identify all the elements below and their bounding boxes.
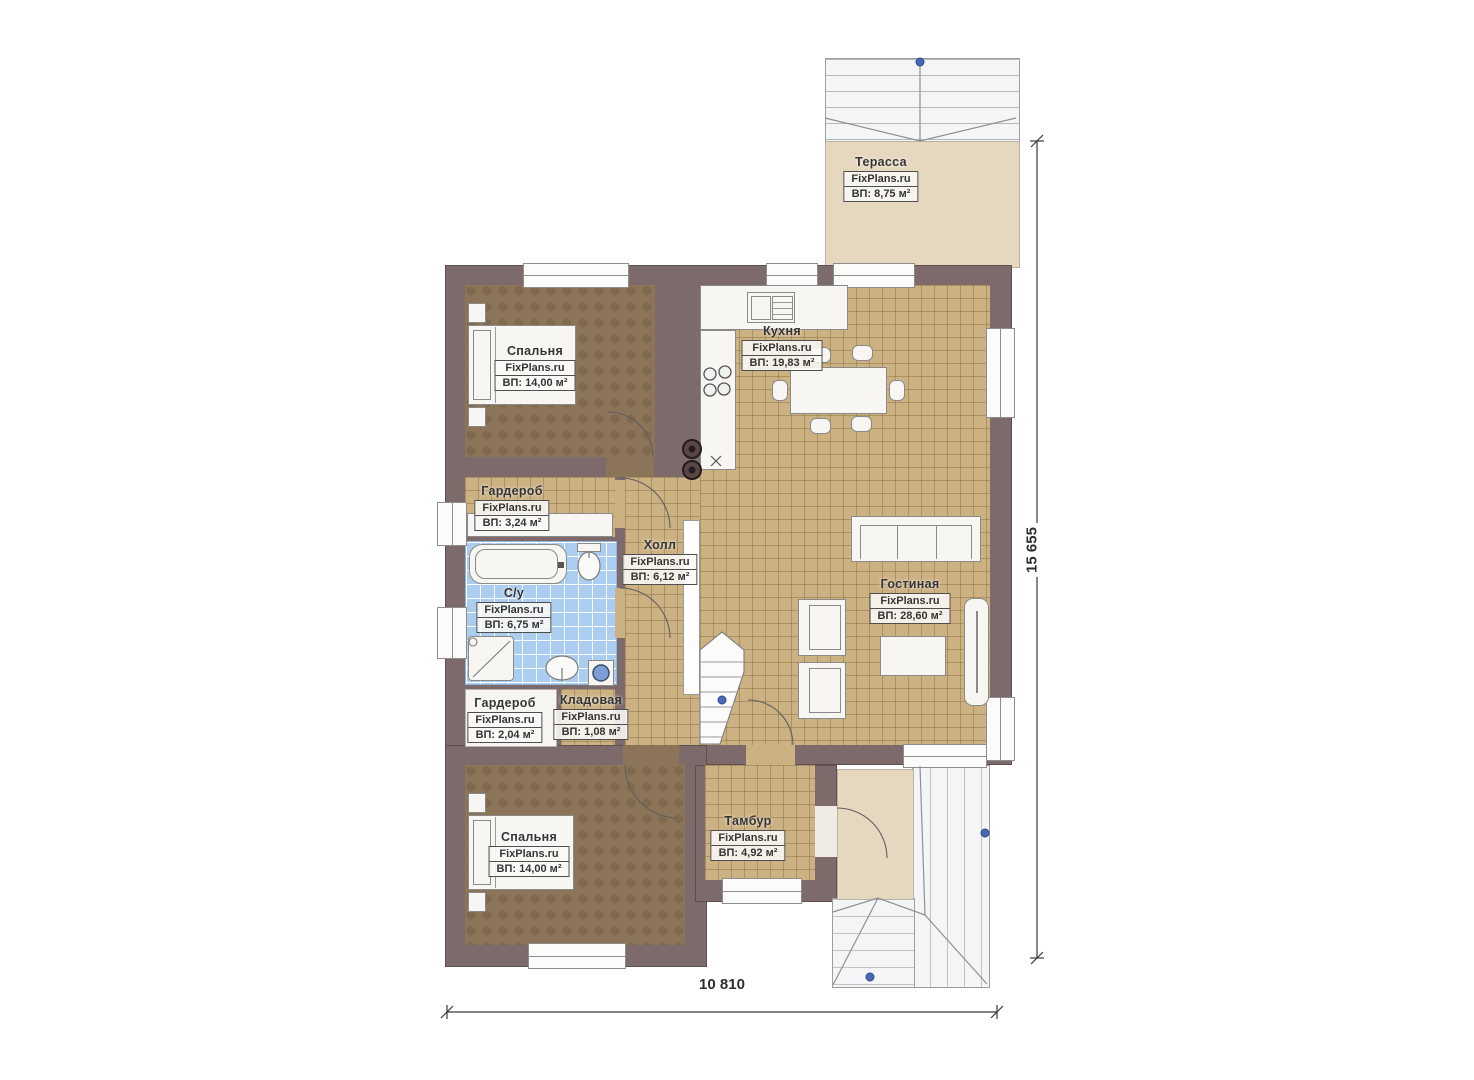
room-label-bedroom-bottom: Спальня FixPlans.ru ВП: 14,00 м² bbox=[489, 830, 570, 877]
dimension-height: 15 655 bbox=[1024, 523, 1041, 577]
kitchen-sink-drainer bbox=[772, 296, 793, 320]
shower bbox=[468, 636, 514, 681]
porch-canopy-hatch-right bbox=[912, 765, 990, 988]
room-label-bathroom: С/у FixPlans.ru ВП: 6,75 м² bbox=[476, 586, 551, 633]
armchair bbox=[798, 599, 846, 656]
room-area: ВП: 19,83 м² bbox=[743, 356, 822, 370]
room-label-terrace: Терасса FixPlans.ru ВП: 8,75 м² bbox=[843, 155, 918, 202]
watermark: FixPlans.ru bbox=[490, 847, 569, 862]
door-opening-bathroom bbox=[615, 588, 625, 638]
door-opening-wardrobe-top bbox=[615, 480, 625, 528]
room-label-vestibule: Тамбур FixPlans.ru ВП: 4,92 м² bbox=[710, 814, 785, 861]
dining-table bbox=[790, 367, 887, 414]
room-label-hall: Холл FixPlans.ru ВП: 6,12 м² bbox=[622, 538, 697, 585]
room-name: Тамбур bbox=[710, 814, 785, 828]
room-name: Кладовая bbox=[553, 693, 628, 707]
dimension-width: 10 810 bbox=[695, 976, 749, 993]
kitchen-counter-left bbox=[700, 330, 736, 470]
window-bedroom-bottom bbox=[528, 943, 626, 969]
room-name: С/у bbox=[476, 586, 551, 600]
dining-chair bbox=[810, 418, 831, 434]
nightstand bbox=[468, 892, 486, 912]
door-opening-vestibule bbox=[746, 745, 795, 765]
room-name: Гостиная bbox=[870, 577, 951, 591]
bathtub bbox=[469, 544, 567, 584]
room-label-bedroom-top: Спальня FixPlans.ru ВП: 14,00 м² bbox=[495, 344, 576, 391]
floor-plan: Терасса FixPlans.ru ВП: 8,75 м² Спальня … bbox=[0, 0, 1474, 1080]
radiator-unit bbox=[964, 598, 989, 706]
window-vestibule bbox=[722, 878, 802, 904]
kitchen-sink-basin bbox=[751, 296, 771, 320]
dining-chair bbox=[889, 380, 905, 401]
coffee-table bbox=[880, 636, 946, 676]
window-living-right bbox=[986, 697, 1015, 761]
dining-chair bbox=[852, 345, 873, 361]
nightstand bbox=[468, 793, 486, 813]
room-name: Гардероб bbox=[467, 696, 542, 710]
room-label-living-room: Гостиная FixPlans.ru ВП: 28,60 м² bbox=[870, 577, 951, 624]
porch-floor bbox=[837, 769, 914, 900]
watermark: FixPlans.ru bbox=[477, 603, 550, 618]
dining-chair bbox=[772, 380, 788, 401]
watermark: FixPlans.ru bbox=[468, 713, 541, 728]
room-label-storage: Кладовая FixPlans.ru ВП: 1,08 м² bbox=[553, 693, 628, 740]
watermark: FixPlans.ru bbox=[743, 341, 822, 356]
room-name: Гардероб bbox=[474, 484, 549, 498]
room-area: ВП: 1,08 м² bbox=[554, 725, 627, 739]
washing-machine bbox=[588, 660, 614, 686]
room-area: ВП: 14,00 м² bbox=[490, 862, 569, 876]
door-opening-bedroom-top bbox=[606, 457, 654, 477]
door-opening-bedroom-bottom bbox=[623, 745, 679, 765]
room-name: Кухня bbox=[742, 324, 823, 338]
room-area: ВП: 14,00 м² bbox=[496, 376, 575, 390]
room-area: ВП: 6,12 м² bbox=[623, 570, 696, 584]
watermark: FixPlans.ru bbox=[844, 172, 917, 187]
watermark: FixPlans.ru bbox=[496, 361, 575, 376]
room-area: ВП: 3,24 м² bbox=[475, 516, 548, 530]
dining-chair bbox=[851, 416, 872, 432]
room-name: Спальня bbox=[495, 344, 576, 358]
room-area: ВП: 8,75 м² bbox=[844, 187, 917, 201]
dimension-line-width bbox=[441, 1005, 1003, 1019]
watermark: FixPlans.ru bbox=[623, 555, 696, 570]
room-name: Терасса bbox=[843, 155, 918, 169]
porch-canopy-hatch-bottom bbox=[832, 898, 915, 988]
watermark: FixPlans.ru bbox=[475, 501, 548, 516]
terrace-roof-hatch bbox=[825, 58, 1020, 144]
watermark: FixPlans.ru bbox=[871, 594, 950, 609]
room-area: ВП: 6,75 м² bbox=[477, 618, 550, 632]
sofa bbox=[851, 516, 981, 562]
window-living-bottom bbox=[903, 744, 987, 768]
armchair bbox=[798, 662, 846, 719]
room-label-wardrobe-bottom: Гардероб FixPlans.ru ВП: 2,04 м² bbox=[467, 696, 542, 743]
room-name: Спальня bbox=[489, 830, 570, 844]
nightstand bbox=[468, 303, 486, 323]
window-wardrobe-top bbox=[437, 502, 467, 546]
room-name: Холл bbox=[622, 538, 697, 552]
room-area: ВП: 4,92 м² bbox=[711, 846, 784, 860]
toilet-tank bbox=[577, 543, 601, 552]
window-bathroom bbox=[437, 607, 467, 659]
nightstand bbox=[468, 407, 486, 427]
window-bedroom-top bbox=[523, 263, 629, 288]
room-label-kitchen: Кухня FixPlans.ru ВП: 19,83 м² bbox=[742, 324, 823, 371]
watermark: FixPlans.ru bbox=[554, 710, 627, 725]
watermark: FixPlans.ru bbox=[711, 831, 784, 846]
room-area: ВП: 28,60 м² bbox=[871, 609, 950, 623]
front-door-opening bbox=[815, 806, 837, 857]
room-area: ВП: 2,04 м² bbox=[468, 728, 541, 742]
window-kitchen-right bbox=[986, 328, 1015, 418]
room-label-wardrobe-top: Гардероб FixPlans.ru ВП: 3,24 м² bbox=[474, 484, 549, 531]
